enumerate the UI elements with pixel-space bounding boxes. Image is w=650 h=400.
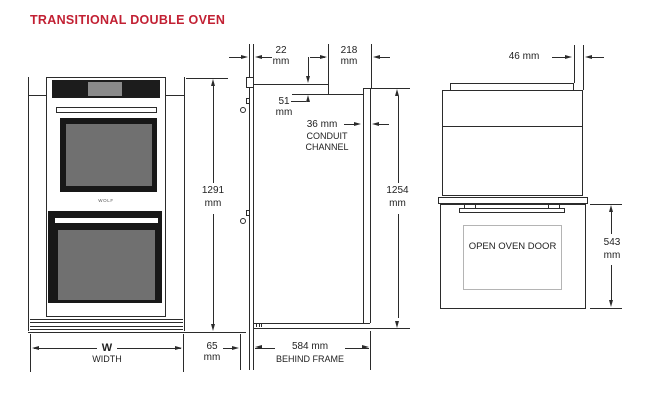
vent-grille-line [30, 319, 183, 320]
arrowhead [211, 79, 215, 86]
door-thickness-value: 22 [275, 45, 286, 56]
arrowhead [211, 324, 215, 331]
chassis-top-line [254, 84, 328, 85]
lower-door-window [58, 230, 155, 300]
arrowhead [255, 55, 262, 59]
dimension-line [117, 348, 181, 349]
behind-frame-depth-label: BEHIND FRAME [276, 354, 344, 364]
extension-line [590, 308, 622, 309]
arrowhead [306, 95, 310, 102]
arrowhead [232, 346, 239, 350]
front-projection-unit: mm [204, 352, 221, 363]
extension-line [370, 328, 410, 329]
extension-line [186, 78, 228, 79]
upper-door-handle [56, 107, 157, 113]
lower-door-handle [55, 218, 158, 224]
open-depth-value: 543 [604, 237, 621, 248]
arrowhead [354, 122, 361, 126]
extension-line [583, 45, 584, 90]
extension-line [30, 334, 31, 372]
arrowhead [175, 346, 182, 350]
arrowhead [320, 55, 327, 59]
upper-handle-profile [240, 107, 246, 113]
vent-tick [256, 323, 257, 327]
conduit-value: 36 mm [307, 119, 338, 130]
cabinet-right-line [184, 77, 185, 331]
door-thickness-unit: mm [273, 56, 290, 67]
front-projection-value: 65 [206, 341, 217, 352]
arrowhead [373, 55, 380, 59]
extension-line [370, 88, 410, 89]
leader-line [291, 101, 306, 102]
extension-line [253, 44, 254, 77]
display-screen [88, 82, 122, 96]
conduit-channel-line [363, 88, 364, 323]
behind-frame-height-value: 1254 [386, 185, 408, 196]
floor-line [28, 332, 246, 333]
top-reveal-value: 46 mm [509, 51, 540, 62]
chassis-step-top-line [292, 94, 363, 95]
vent-grille-line [30, 329, 183, 330]
arrowhead [241, 55, 248, 59]
dimension-line [398, 96, 399, 183]
brand-logo: WOLF [98, 198, 113, 203]
chassis-bottom-line [254, 328, 370, 329]
extension-line [183, 334, 184, 372]
spec-diagram: TRANSITIONAL DOUBLE OVEN WOLF W WIDTH [0, 0, 650, 400]
width-symbol: W [102, 342, 112, 354]
open-depth-unit: mm [604, 250, 621, 261]
vent-grille-line [30, 322, 183, 323]
arrowhead [395, 89, 399, 96]
cutout-line [166, 95, 184, 96]
arrowhead [609, 300, 613, 307]
leader-line [308, 57, 309, 76]
arrowhead [609, 205, 613, 212]
chassis-step-line [328, 44, 329, 94]
rear-top-depth-value: 218 [341, 45, 358, 56]
rear-top-depth-unit: mm [341, 56, 358, 67]
oven-body [442, 90, 583, 196]
dimension-line [611, 212, 612, 234]
arrowhead [565, 55, 572, 59]
page-title: TRANSITIONAL DOUBLE OVEN [30, 13, 225, 27]
dimension-line [398, 214, 399, 318]
behind-frame-height-unit: mm [389, 198, 406, 209]
door-joint-tab [246, 210, 251, 216]
door-face-line [249, 77, 250, 370]
extension-line [249, 44, 250, 77]
arrowhead [585, 55, 592, 59]
dimension-line [262, 57, 272, 58]
body-division-line [443, 126, 582, 127]
cutout-line [28, 95, 46, 96]
arrowhead [32, 346, 39, 350]
open-door-label: OPEN OVEN DOOR [469, 242, 557, 253]
dimension-line [34, 348, 97, 349]
vent-grille-line [30, 326, 183, 327]
frame-height-value: 1291 [202, 185, 224, 196]
dimension-line [592, 57, 604, 58]
top-step-unit: mm [276, 107, 293, 118]
upper-door-window [66, 124, 152, 186]
extension-line [240, 334, 241, 370]
behind-frame-depth-value: 584 mm [292, 341, 328, 352]
extension-line [574, 45, 575, 83]
arrowhead [255, 345, 262, 349]
dimension-line [213, 214, 214, 324]
arrowhead [395, 321, 399, 328]
width-label: WIDTH [92, 354, 122, 364]
dimension-line [611, 265, 612, 300]
arrowhead [306, 76, 310, 83]
conduit-channel-line [370, 88, 371, 323]
conduit-label-1: CONDUIT [307, 131, 348, 141]
arrowhead [362, 345, 369, 349]
dimension-line [380, 57, 390, 58]
door-handle-bar [459, 208, 565, 214]
chassis-bottom-line [254, 323, 370, 324]
vent-tick [261, 323, 262, 327]
frame-height-unit: mm [205, 198, 222, 209]
extension-line [371, 44, 372, 88]
conduit-channel-top [363, 88, 370, 89]
extension-line [370, 331, 371, 370]
cabinet-left-line [28, 77, 29, 331]
door-top-trim [246, 77, 255, 88]
arrowhead [372, 122, 379, 126]
top-step-value: 51 [278, 96, 289, 107]
leader-line [379, 124, 389, 125]
lower-handle-profile [240, 218, 246, 224]
door-face-line [253, 77, 254, 370]
door-joint-tab [246, 98, 251, 104]
dimension-line [213, 86, 214, 183]
conduit-label-2: CHANNEL [305, 142, 348, 152]
open-door-window [463, 225, 562, 290]
extension-line [590, 204, 622, 205]
vent-tick [259, 323, 260, 327]
